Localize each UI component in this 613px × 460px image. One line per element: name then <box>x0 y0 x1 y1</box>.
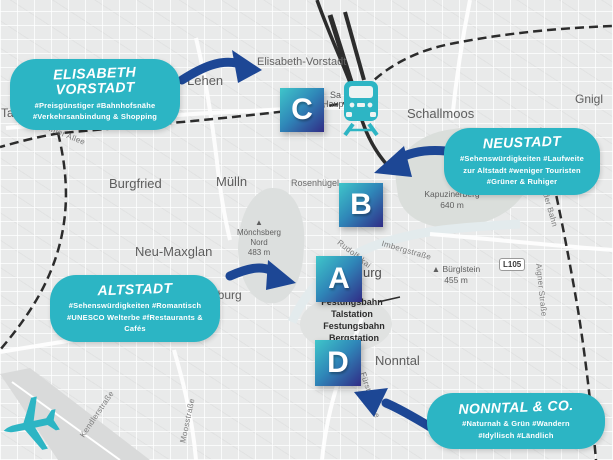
marker-c-letter: C <box>291 93 313 127</box>
callout-altstadt-title: ALTSTADT <box>58 279 212 300</box>
callout-elisabeth-tags: #Preisgünstiger #Bahnhofsnähe #Verkehrsa… <box>18 100 172 123</box>
marker-b-neustadt[interactable]: B <box>339 183 383 227</box>
callout-nonntal-tags: #Naturnah & Grün #Wandern #Idyllisch #Lä… <box>435 418 597 441</box>
arrow-nonntal-to-d <box>386 403 432 428</box>
callout-neustadt-tags: #Sehenswürdigkeiten #Laufweite zur Altst… <box>452 153 592 187</box>
salzburg-districts-map: Elisabeth-Vorstadt Lehen Schallmoos Gnig… <box>0 0 613 460</box>
marker-a-letter: A <box>328 262 350 296</box>
airplane-icon <box>0 391 65 460</box>
callout-neustadt-title: NEUSTADT <box>452 133 592 153</box>
marker-b-letter: B <box>350 188 372 222</box>
callout-elisabeth-title: ELISABETH VORSTADT <box>18 63 173 99</box>
marker-a-altstadt[interactable]: A <box>316 256 362 302</box>
marker-d-nonntal[interactable]: D <box>315 340 361 386</box>
callout-elisabeth-vorstadt: ELISABETH VORSTADT #Preisgünstiger #Bahn… <box>10 59 180 130</box>
callout-nonntal-title: NONNTAL & CO. <box>435 397 597 418</box>
callout-nonntal: NONNTAL & CO. #Naturnah & Grün #Wandern … <box>427 393 605 449</box>
callout-altstadt-tags: #Sehenswürdigkeiten #Romantisch #UNESCO … <box>58 300 212 334</box>
train-icon <box>338 79 384 137</box>
arrow-altstadt-to-a <box>230 268 270 276</box>
callout-neustadt: NEUSTADT #Sehenswürdigkeiten #Laufweite … <box>444 128 600 195</box>
callout-altstadt: ALTSTADT #Sehenswürdigkeiten #Romantisch… <box>50 275 220 342</box>
arrow-elisabeth-to-c <box>182 62 236 80</box>
marker-d-letter: D <box>327 346 349 380</box>
marker-c-elisabeth-vorstadt[interactable]: C <box>280 88 324 132</box>
